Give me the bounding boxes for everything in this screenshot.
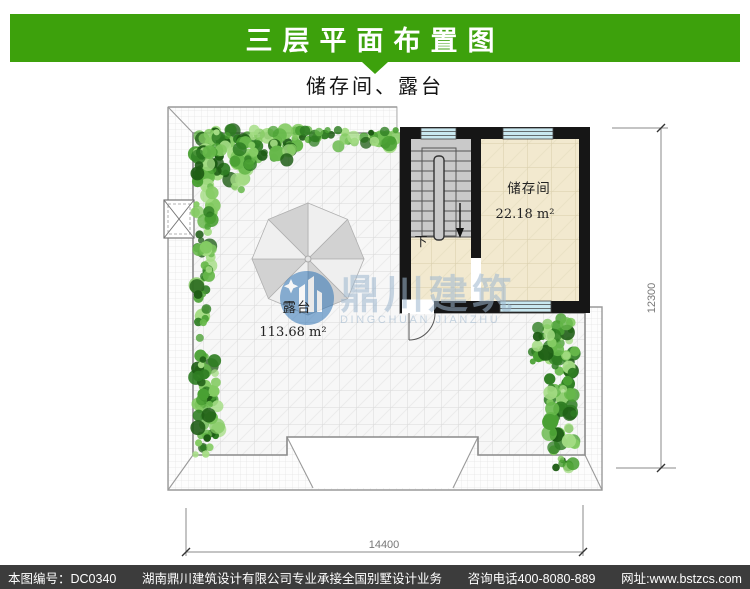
footer-company: 湖南鼎川建筑设计有限公司专业承接全国别墅设计业务	[142, 568, 442, 587]
terrace-label: 露台	[283, 300, 312, 316]
footer-website: 网址:www.bstzcs.com	[621, 568, 742, 587]
chimney-box-icon	[164, 200, 194, 238]
floor-plan: 鼎川建筑 DINGCHUAN JIANZHU 储存间 22.18 m² 露台 1…	[0, 0, 750, 589]
storage-room-label: 储存间	[507, 181, 551, 197]
page: 三层平面布置图 储存间、露台	[0, 0, 750, 589]
footer-bar: 本图编号：DC0340 湖南鼎川建筑设计有限公司专业承接全国别墅设计业务 咨询电…	[0, 565, 750, 589]
dim-height	[612, 124, 676, 472]
footer-drawing-no: 本图编号：DC0340	[8, 568, 116, 587]
dim-height-label: 12300	[646, 283, 658, 314]
window-icon-stair	[421, 128, 456, 139]
storage-room-area: 22.18 m²	[496, 207, 555, 222]
watermark-en: DINGCHUAN JIANZHU	[340, 314, 500, 326]
terrace-area: 113.68 m²	[259, 325, 326, 340]
watermark: 鼎川建筑 DINGCHUAN JIANZHU	[280, 271, 516, 326]
footer-phone: 咨询电话400-8080-889	[468, 568, 596, 587]
watermark-logo-icon	[280, 271, 334, 325]
stair-railing	[434, 156, 444, 240]
stair-down-label: 下	[414, 235, 427, 250]
dim-width-label: 14400	[369, 539, 400, 551]
porch-roof-blank	[287, 437, 478, 488]
stair-divider-wall	[471, 139, 481, 258]
window-icon-storage-top	[503, 128, 553, 139]
watermark-cn: 鼎川建筑	[340, 271, 516, 318]
